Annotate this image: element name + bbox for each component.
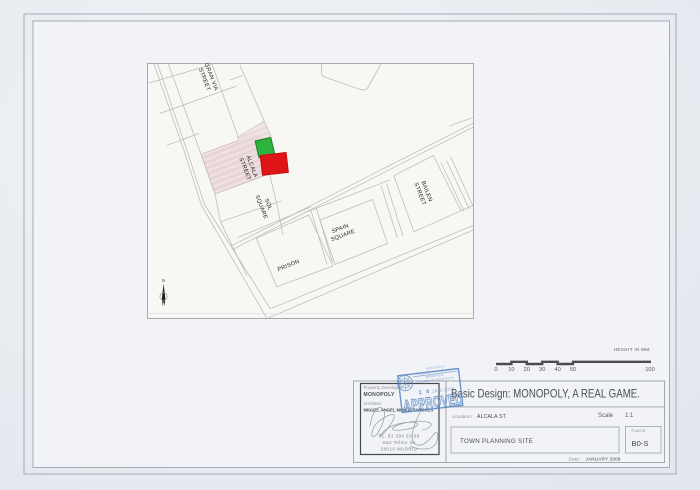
svg-text:100: 100 (645, 367, 655, 373)
svg-text:1:1: 1:1 (625, 413, 634, 419)
svg-text:HEIGHT IN MM.: HEIGHT IN MM. (614, 347, 651, 352)
svg-text:ALCALA ST.: ALCALA ST. (477, 414, 507, 420)
svg-text:TL. 91 394 53 08: TL. 91 394 53 08 (378, 434, 419, 439)
svg-text:50: 50 (570, 367, 576, 373)
svg-text:40: 40 (554, 367, 560, 373)
svg-text:Location:: Location: (453, 414, 472, 420)
svg-text:Basic Design: MONOPOLY, A REA: Basic Design: MONOPOLY, A REAL GAME. (451, 387, 640, 401)
svg-text:B0-S: B0-S (632, 439, 649, 448)
svg-text:10: 10 (508, 367, 514, 373)
svg-text:PLAN Nº: PLAN Nº (632, 429, 647, 433)
svg-text:20: 20 (524, 367, 530, 373)
svg-text:N: N (162, 278, 165, 283)
svg-text:Date:: Date: (569, 457, 580, 463)
svg-text:Property Developer:: Property Developer: (364, 385, 403, 390)
svg-text:0: 0 (494, 367, 497, 373)
svg-text:30: 30 (539, 367, 545, 373)
svg-text:JANUARY 2008: JANUARY 2008 (586, 457, 621, 462)
svg-text:Architect:: Architect: (364, 401, 382, 406)
svg-text:MONOPOLY: MONOPOLY (364, 392, 395, 398)
svg-text:Scale: Scale (598, 413, 614, 419)
svg-text:San Telmo 36: San Telmo 36 (383, 440, 416, 445)
svg-text:TOWN PLANNING SITE: TOWN PLANNING SITE (460, 438, 533, 445)
